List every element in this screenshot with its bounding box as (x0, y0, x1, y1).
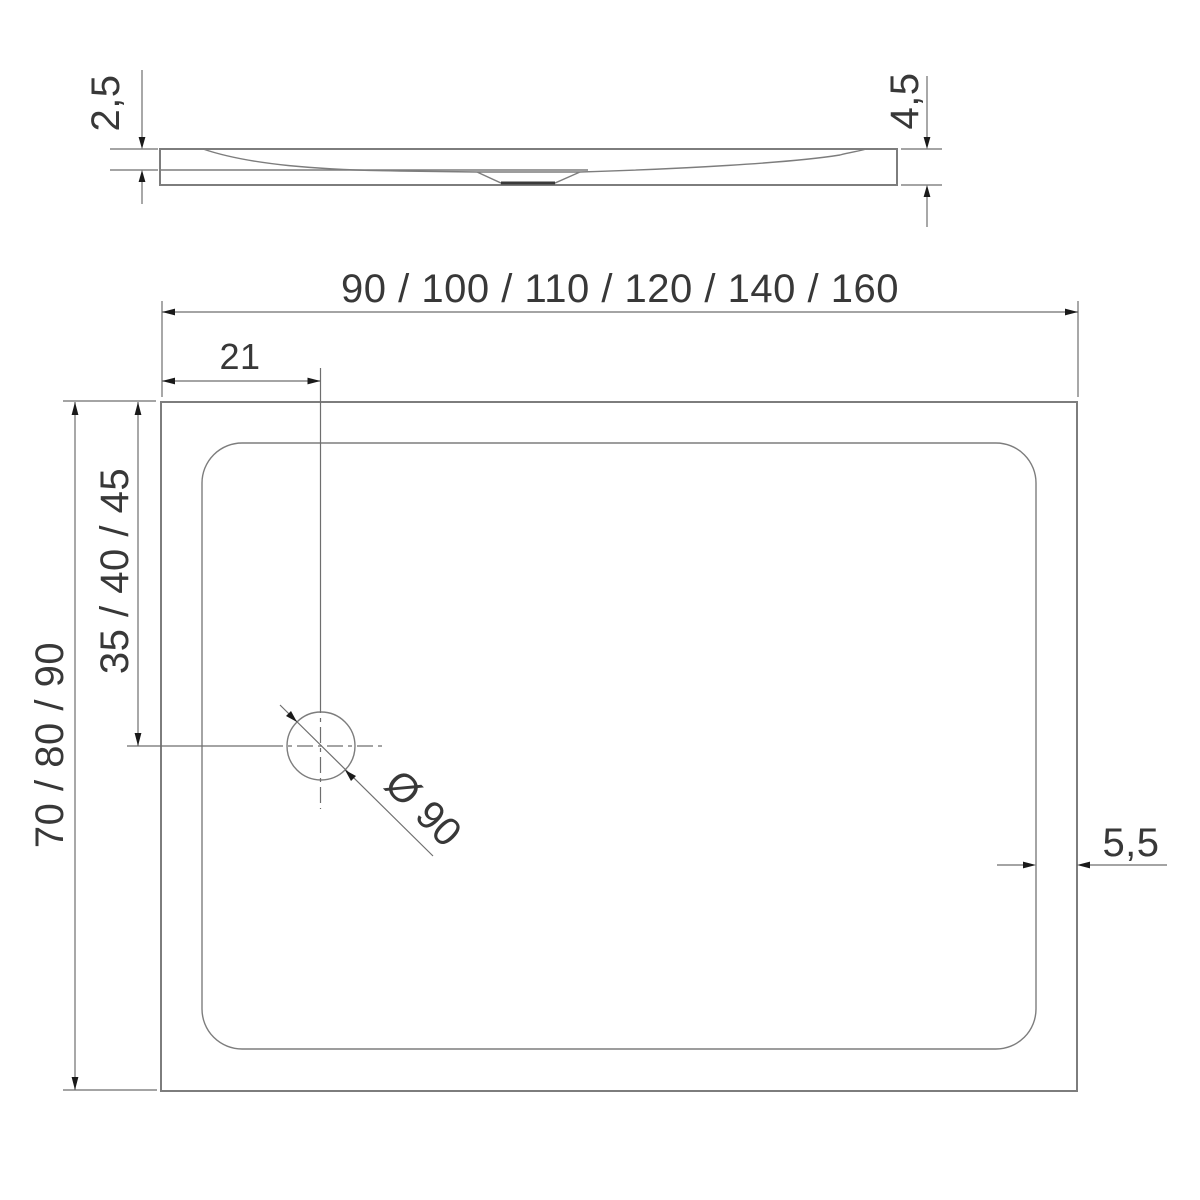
arrow-up-icon (924, 185, 931, 197)
arrow-left-icon (1077, 862, 1090, 869)
tray-profile-floor-slope-right (580, 149, 866, 172)
arrow-down-icon (135, 733, 142, 746)
arrow-right-icon (1065, 309, 1078, 316)
rim-height-label: 2,5 (84, 74, 128, 131)
dim-drain-diameter: Ø 90 (280, 705, 470, 856)
arrow-diagonal-icon (345, 770, 356, 781)
arrow-up-icon (139, 170, 146, 182)
arrow-down-icon (139, 137, 146, 149)
drain-diameter-label: Ø 90 (376, 762, 470, 856)
dim-rim-height: 2,5 (84, 70, 158, 204)
arrow-right-icon (308, 378, 321, 385)
drain-centerlines (267, 697, 383, 809)
arrow-left-icon (162, 378, 175, 385)
total-height-label: 4,5 (883, 72, 927, 129)
drawing-canvas: 2,5 4,5 90 / 100 / 110 / 120 / 140 / 160 (0, 0, 1200, 1200)
arrow-up-icon (72, 402, 79, 415)
drain-offset-x-label: 21 (219, 336, 260, 377)
tray-profile-drain-recess (477, 172, 580, 183)
tray-profile-floor-slope-left (203, 149, 477, 172)
dim-edge-width: 5,5 (997, 821, 1167, 868)
arrow-down-icon (72, 1077, 79, 1090)
arrow-left-icon (162, 309, 175, 316)
dim-drain-offset-y: 35 / 40 / 45 (93, 402, 267, 746)
depth-options-label: 70 / 80 / 90 (28, 642, 72, 848)
arrow-up-icon (135, 402, 142, 415)
tray-profile-outline (160, 149, 897, 185)
arrow-down-icon (924, 137, 931, 149)
side-profile-view (160, 149, 897, 185)
dim-width-options: 90 / 100 / 110 / 120 / 140 / 160 (162, 267, 1078, 397)
edge-width-label: 5,5 (1102, 821, 1159, 865)
dim-drain-offset-x: 21 (162, 336, 321, 697)
drain-offset-y-label: 35 / 40 / 45 (93, 468, 137, 674)
arrow-right-icon (1023, 862, 1036, 869)
width-options-label: 90 / 100 / 110 / 120 / 140 / 160 (341, 267, 899, 311)
shower-tray-technical-drawing: 2,5 4,5 90 / 100 / 110 / 120 / 140 / 160 (0, 0, 1200, 1200)
